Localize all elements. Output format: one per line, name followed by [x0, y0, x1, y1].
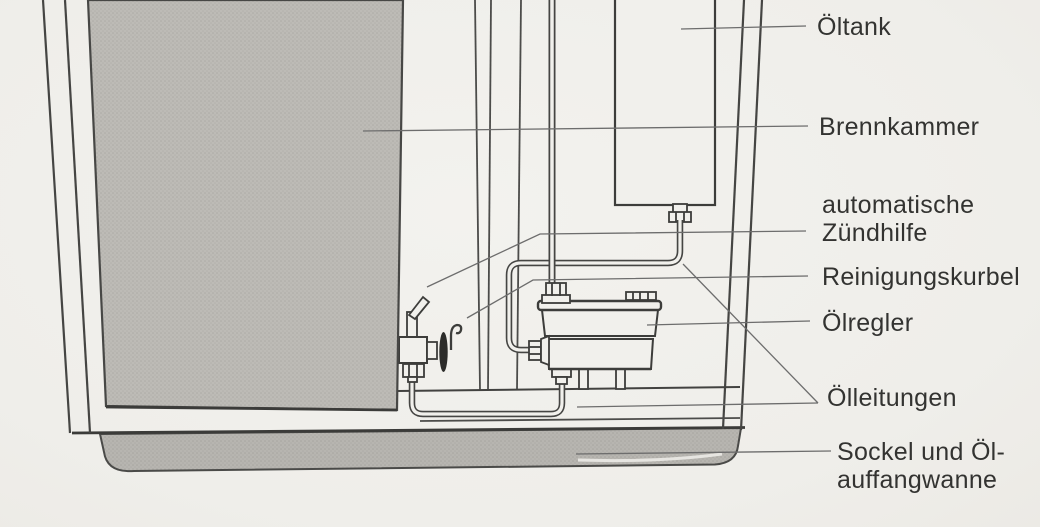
regulator-body-upper [542, 310, 658, 336]
regulator-left-connector [529, 336, 549, 365]
label-oelregler: Ölregler [822, 309, 913, 337]
ignition-lever [409, 297, 429, 319]
valve-body [399, 337, 427, 363]
label-sockel-line2: auffangwanne [837, 466, 1005, 494]
cleaning-crank-handle [451, 325, 461, 350]
chamber-frame-lines [475, 0, 521, 390]
combustion-chamber-panel [88, 0, 403, 410]
oil-tank-outlet-fitting [669, 204, 691, 222]
valve-body-step [427, 342, 437, 359]
label-oelleitungen: Ölleitungen [827, 384, 957, 412]
label-oeltank: Öltank [817, 13, 891, 41]
left-wall-outer-line [43, 0, 70, 433]
regulator-body-lower [547, 339, 653, 369]
oil-tank [615, 0, 715, 222]
valve-bottom-nut [403, 364, 424, 382]
right-wall-inner-line [723, 0, 744, 429]
label-sockel-line1: Sockel und Öl- [837, 438, 1005, 466]
bottom-u-pipe [412, 381, 562, 414]
oil-regulator [529, 283, 661, 389]
technical-diagram-oil-stove: Öltank Brennkammer automatische Zündhilf… [0, 0, 1040, 527]
right-wall-outer-line [741, 0, 762, 430]
regulator-leg [616, 369, 625, 389]
regulator-filler-cap [626, 292, 656, 300]
label-zuendhilfe-line2: Zündhilfe [822, 219, 974, 247]
regulator-bottom-outlet [556, 377, 567, 384]
label-zuendhilfe: automatische Zündhilfe [822, 191, 974, 247]
cabinet-bottom-rail-line [420, 418, 740, 421]
leader-oelleitungen-lower [577, 403, 818, 407]
label-zuendhilfe-line1: automatische [822, 191, 974, 219]
label-brennkammer: Brennkammer [819, 113, 979, 141]
label-reinigungskurbel: Reinigungskurbel [822, 263, 1020, 291]
regulator-top-inlet-fitting [542, 283, 570, 303]
crank-handwheel [439, 332, 447, 372]
chamber-floor-line [398, 387, 740, 391]
leader-brennkammer [363, 126, 808, 131]
left-wall-inner-line [65, 0, 90, 433]
regulator-leg [579, 369, 588, 389]
burner-valve-assembly [399, 297, 461, 382]
base-oil-tray [72, 428, 745, 472]
leader-oelleitungen-upper [683, 264, 818, 403]
label-sockel: Sockel und Öl- auffangwanne [837, 438, 1005, 494]
